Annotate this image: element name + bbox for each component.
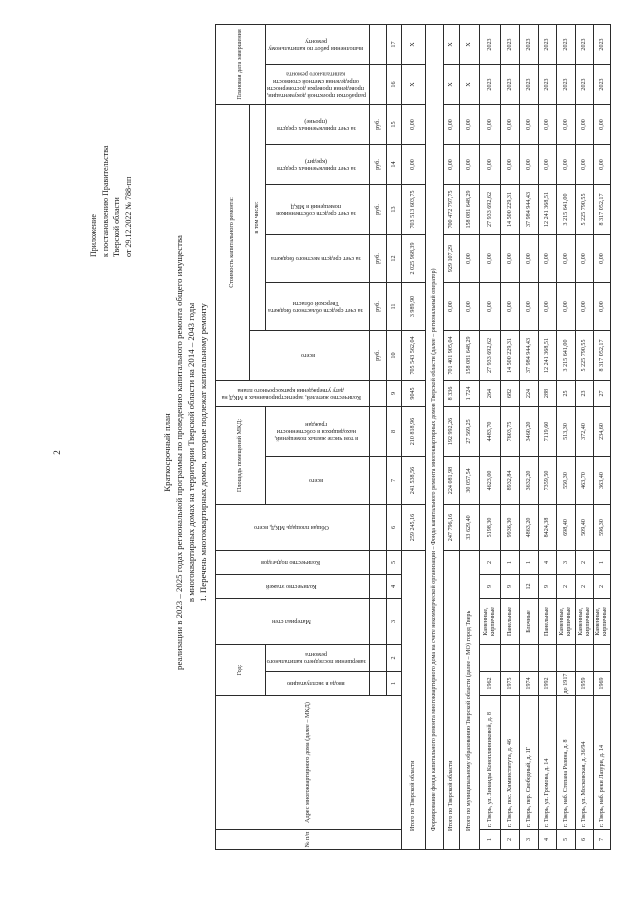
data-cell: 27 933 692,62 [480,184,501,234]
summary-value: X [402,64,426,104]
data-cell [520,644,539,671]
summary-row: Формирование фонда капитального ремонта … [426,24,444,849]
header-cost-owners: за счет средств собственников помещений … [266,184,370,234]
data-cell: 0,00 [576,234,594,282]
table-row: 3г. Тверь, пер. Свободный, д. 1Г1974Блоч… [520,24,539,849]
header-entrances: Количество подъездов [216,550,370,574]
data-cell: 596,30 [594,504,611,550]
unit-cell-col8 [370,504,387,550]
data-cell: 0,00 [539,234,557,282]
header-premises-area-group: Площадь помещений МКД: [216,406,266,504]
row-number-cell: 6 [576,830,594,850]
data-cell: 2 [576,574,594,598]
summary-value: X [460,24,480,64]
data-cell: 1992 [539,672,557,696]
data-cell: 2023 [557,24,576,64]
summary-value: 224 081,98 [444,456,460,504]
data-cell: 0,00 [539,104,557,144]
data-cell: 0,00 [520,234,539,282]
unit-cell-col10 [370,406,387,456]
header-premises-area-citizens-text: в том числе жилых помещений, находящихся… [266,421,366,442]
header-cost-other-text: за счет привлеченных средств (прочие) [266,117,366,131]
column-number-3: 3 [387,598,402,644]
column-number-4: 4 [387,574,402,598]
data-cell: 8 317 052,17 [594,184,611,234]
column-number-11: 11 [387,282,402,330]
summary-value: 259 245,16 [402,504,426,550]
summary-value: 929 107,29 [444,234,460,282]
unit-cell-col3 [370,672,387,696]
unit-cell-col4 [370,644,387,671]
data-cell: 4 [539,550,557,574]
header-cost-local: за счет средств местного бюджета [266,234,370,282]
header-date-works: выполнения работ по капитальному ремонту [266,24,370,64]
data-cell: 1962 [480,672,501,696]
header-cost-local-text: за счет средств местного бюджета [271,255,361,262]
header-date-group: Плановая дата завершения [216,24,266,104]
header-premises-area-total-text: всего [309,477,323,484]
summary-label: Итого по Тверской области [402,550,426,849]
data-cell: 3 215 641,00 [557,330,576,380]
summary-value: 0,00 [460,104,480,144]
data-cell: 513,30 [557,406,576,456]
data-cell: Каменные, кирпичные [594,598,611,644]
column-number-1: 1 [387,672,402,696]
data-cell: 509,40 [576,504,594,550]
unit-cell-col6 [370,574,387,598]
column-number-16: 16 [387,64,402,104]
data-cell: 5 225 790,55 [576,184,594,234]
summary-value: 158 081 648,29 [460,184,480,234]
data-cell: 463,70 [576,456,594,504]
summary-value: 192 992,26 [444,406,460,456]
header-year-last-repair-text: завершения последнего капитального ремон… [266,651,366,665]
data-cell: 0,00 [520,144,539,184]
data-cell [501,644,520,671]
data-cell: 12 [520,574,539,598]
address-cell: г. Тверь, пер. Свободный, д. 1Г [520,696,539,830]
data-cell: 1969 [594,672,611,696]
data-cell: 27 933 692,62 [480,330,501,380]
appendix-line: к постановлению Правительства [100,146,112,257]
summary-value: 0,00 [444,144,460,184]
page-number: 2 [52,0,62,905]
column-number-2: 2 [387,644,402,671]
header-cost-group: Стоимость капитального ремонта: [216,104,250,380]
data-cell: 9 [501,574,520,598]
data-cell: 2 [480,550,501,574]
row-number-cell: 5 [557,830,576,850]
header-cost-credit-text: за счет привлеченных средств (кредит) [266,157,366,171]
data-cell: 0,00 [501,282,520,330]
data-cell: 2023 [594,24,611,64]
address-cell: г. Тверь, ул. Зинаиды Коноплянниковой, д… [480,696,501,830]
data-cell: 1975 [501,672,520,696]
row-number-cell: 3 [520,830,539,850]
summary-value: X [444,64,460,104]
data-cell: 0,00 [576,282,594,330]
summary-value: 700 472 797,75 [444,184,460,234]
data-cell: 2023 [501,64,520,104]
summary-value: 0,00 [444,282,460,330]
unit-cell-col9 [370,456,387,504]
data-cell: 0,00 [539,282,557,330]
data-cell: 0,00 [594,144,611,184]
header-residents: Количество жителей, зарегистрированных в… [216,380,370,406]
data-cell: 2 [557,574,576,598]
header-cost-regional: за счет средств областного бюджета Тверс… [266,282,370,330]
summary-value: 241 538,56 [402,456,426,504]
header-year-built: ввода в эксплуатацию [266,672,370,696]
title-line: 1. Перечень многоквартирных домов, котор… [198,0,210,905]
header-num: № п/п [216,830,402,850]
data-cell: 2023 [520,64,539,104]
data-cell: 9 [539,574,557,598]
header-cost-incl-group: в том числе: [250,104,266,330]
header-premises-area-total: всего [266,456,370,504]
data-cell: Панельные [501,598,520,644]
summary-value: 0,00 [402,104,426,144]
data-cell: 1974 [520,672,539,696]
data-cell: 0,00 [480,144,501,184]
data-cell: 4863,20 [520,504,539,550]
header-cost-credit: за счет привлеченных средств (кредит) [266,144,370,184]
summary-value: 158 081 648,29 [460,330,480,380]
appendix-line: от 29.12.2022 № 788-пп [123,146,135,257]
summary-value: 30 057,54 [460,456,480,504]
unit-cell-col11 [370,380,387,406]
summary-value: 0,00 [460,234,480,282]
data-cell: 3632,20 [520,456,539,504]
data-cell: 37 984 944,43 [520,330,539,380]
row-number-cell: 2 [501,830,520,850]
data-cell: 288 [539,380,557,406]
table-row: 6г. Тверь, ул. Московская, д. 36/941959К… [576,24,594,849]
unit-cell-col17: руб. [370,104,387,144]
appendix-line: Тверской области [111,146,123,257]
data-cell: 7603,75 [501,406,520,456]
unit-cell-col14: руб. [370,234,387,282]
data-cell: до 1917 [557,672,576,696]
row-number-cell: 1 [480,830,501,850]
column-number-9: 9 [387,380,402,406]
header-wall-material-text: Материал стен [272,618,311,625]
unit-cell-col18 [370,64,387,104]
data-cell: 2 [594,574,611,598]
data-cell: 0,00 [539,144,557,184]
row-number-cell: 7 [594,830,611,850]
header-year-built-text: ввода в эксплуатацию [287,680,345,687]
address-cell: г. Тверь, ул. Громова, д. 14 [539,696,557,830]
data-cell: 3460,20 [520,406,539,456]
data-cell: 0,00 [480,104,501,144]
summary-value: 247 796,16 [444,504,460,550]
data-cell: 5 225 790,55 [576,330,594,380]
column-number-7: 7 [387,456,402,504]
header-floors-text: Количество этажей [266,583,317,590]
data-cell: 9936,30 [501,504,520,550]
data-cell: 363,40 [594,456,611,504]
summary-value: 0,00 [460,282,480,330]
unit-cell-col7 [370,550,387,574]
data-cell: 37 984 944,43 [520,184,539,234]
rotated-sheet: Приложение к постановлению Правительства… [0,0,640,905]
data-cell: Панельные [539,598,557,644]
summary-value: 2 025 968,39 [402,234,426,282]
column-number-6: 6 [387,504,402,550]
header-cost-regional-text: за счет средств областного бюджета Тверс… [266,299,366,313]
data-cell: 698,40 [557,504,576,550]
summary-value: X [460,64,480,104]
address-cell: г. Тверь, наб. Степана Разина, д. 8 [557,696,576,830]
header-cost-owners-text: за счет средств собственников помещений … [266,202,366,216]
data-cell: Каменные, кирпичные [557,598,576,644]
data-cell: 2023 [539,64,557,104]
table-row: 1г. Тверь, ул. Зинаиды Коноплянниковой, … [480,24,501,849]
summary-row: Итого по Тверской области259 245,16241 5… [402,24,426,849]
data-cell: 1959 [576,672,594,696]
summary-value: 0,00 [402,144,426,184]
data-cell: 4623,00 [480,456,501,504]
unit-cell-col12: руб. [370,330,387,380]
data-cell: 2023 [594,64,611,104]
data-cell: 12 241 368,51 [539,330,557,380]
table-row: 5г. Тверь, наб. Степана Разина, д. 8до 1… [557,24,576,849]
summary-value: 9045 [402,380,426,406]
data-cell: 14 500 229,31 [501,330,520,380]
data-cell: Каменные, кирпичные [576,598,594,644]
data-cell: 25 [557,380,576,406]
data-cell: 0,00 [480,282,501,330]
header-date-docs: разработки проектной документации, прове… [266,64,370,104]
data-cell: 3 [557,550,576,574]
data-cell: 550,30 [557,456,576,504]
address-cell: г. Тверь, наб. реки Лазури, д. 14 [594,696,611,830]
column-number-14: 14 [387,144,402,184]
column-number-8: 8 [387,406,402,456]
unit-cell-col15: руб. [370,184,387,234]
data-cell: 7359,50 [539,456,557,504]
column-number-15: 15 [387,104,402,144]
summary-row: Итого по Тверской области247 796,16224 0… [444,24,460,849]
summary-value: X [444,24,460,64]
address-cell: г. Тверь, ул. Московская, д. 36/94 [576,696,594,830]
data-cell: 0,00 [594,234,611,282]
summary-label: Итого по Тверской области [444,550,460,849]
unit-cell-col13: руб. [370,282,387,330]
data-cell: 0,00 [594,104,611,144]
data-cell: 2023 [480,24,501,64]
table-row: 4г. Тверь, ул. Громова, д. 141992Панельн… [539,24,557,849]
header-entrances-text: Количество подъездов [261,559,320,566]
data-cell: 0,00 [557,282,576,330]
header-cost-other: за счет привлеченных средств (прочие) [266,104,370,144]
header-date-works-text: выполнения работ по капитальному ремонту [266,37,366,51]
data-cell [594,644,611,671]
data-cell: 9 [480,574,501,598]
data-cell: 2 [576,550,594,574]
header-address: Адрес многоквартирного дома (далее – МКД… [216,696,402,830]
summary-value: 8 336 [444,380,460,406]
data-cell: 0,00 [576,104,594,144]
header-premises-area-citizens: в том числе жилых помещений, находящихся… [266,406,370,456]
data-cell: 2023 [501,24,520,64]
data-cell: 23 [576,380,594,406]
data-cell: Блочные [520,598,539,644]
header-year-last-repair: завершения последнего капитального ремон… [266,644,370,671]
title-line: реализации в 2023 – 2025 годах региональ… [174,0,186,905]
data-cell: Каменные, кирпичные [480,598,501,644]
header-total-area: Общая площадь МКД, всего [216,504,370,550]
table-row: 2г. Тверь, пос. Химинститута, д. 461975П… [501,24,520,849]
column-number-5: 5 [387,550,402,574]
summary-value: 3 989,90 [402,282,426,330]
header-cost-total-text: всего [301,352,315,359]
repair-plan-table: № п/п Адрес многоквартирного дома (далее… [215,24,611,850]
data-cell: 0,00 [557,104,576,144]
data-cell: 372,40 [576,406,594,456]
column-number-13: 13 [387,184,402,234]
summary-value: 27 569,25 [460,406,480,456]
data-cell [480,644,501,671]
header-date-docs-text: разработки проектной документации, прове… [266,70,366,99]
title-line: Краткосрочный план [162,0,174,905]
title-line: в многоквартирных домах на территории Тв… [186,0,198,905]
summary-value: X [402,24,426,64]
data-cell: 2023 [520,24,539,64]
row-number-cell: 4 [539,830,557,850]
data-cell: 0,00 [594,282,611,330]
data-cell: 234,60 [594,406,611,456]
data-cell: 3 215 641,00 [557,184,576,234]
header-residents-text: Количество жителей, зарегистрированных в… [217,386,365,400]
data-cell: 2023 [539,24,557,64]
column-number-17: 17 [387,24,402,64]
address-cell: г. Тверь, пос. Химинститута, д. 46 [501,696,520,830]
summary-value: 701 401 905,04 [444,330,460,380]
summary-value: 33 629,40 [460,504,480,550]
data-cell: 8424,38 [539,504,557,550]
data-cell: 2023 [576,64,594,104]
summary-value: 703 513 603,75 [402,184,426,234]
header-wall-material: Материал стен [216,598,370,644]
data-cell: 27 [594,380,611,406]
unit-cell-col19 [370,24,387,64]
column-number-10: 10 [387,330,402,380]
data-cell: 12 241 368,51 [539,184,557,234]
data-cell: 0,00 [557,234,576,282]
data-cell: 14 500 229,31 [501,184,520,234]
unit-cell-col16: руб. [370,144,387,184]
table-row: 7г. Тверь, наб. реки Лазури, д. 141969Ка… [594,24,611,849]
appendix-block: Приложение к постановлению Правительства… [88,146,134,257]
data-cell: 0,00 [501,234,520,282]
summary-label: Итого по муниципальному образованию Твер… [460,550,480,849]
unit-cell-col5 [370,598,387,644]
data-cell: 4483,70 [480,406,501,456]
data-cell: 1 [594,550,611,574]
data-cell: 8 317 052,17 [594,330,611,380]
data-cell: 8932,84 [501,456,520,504]
data-cell [557,644,576,671]
column-number-12: 12 [387,234,402,282]
data-cell: 7119,60 [539,406,557,456]
summary-value: 0,00 [460,144,480,184]
data-cell: 0,00 [520,282,539,330]
header-total-area-text: Общая площадь МКД, всего [254,524,329,531]
summary-row: Итого по муниципальному образованию Твер… [460,24,480,849]
data-cell: 224 [520,380,539,406]
forming-fund-row-label: Формирование фонда капитального ремонта … [426,24,444,849]
data-cell: 682 [501,380,520,406]
header-year-group: Год: [216,644,266,695]
data-cell [539,644,557,671]
document-page: Приложение к постановлению Правительства… [0,0,640,905]
data-cell: 0,00 [576,144,594,184]
data-cell: 264 [480,380,501,406]
data-cell: 1 [501,550,520,574]
data-cell: 2023 [557,64,576,104]
data-cell [576,644,594,671]
data-cell: 5198,30 [480,504,501,550]
data-cell: 0,00 [501,144,520,184]
header-cost-total: всего [250,330,370,380]
data-cell: 2023 [576,24,594,64]
summary-value: 1 724 [460,380,480,406]
data-cell: 0,00 [480,234,501,282]
data-cell: 0,00 [501,104,520,144]
data-cell: 0,00 [557,144,576,184]
summary-value: 0,00 [444,104,460,144]
header-floors: Количество этажей [216,574,370,598]
document-title: Краткосрочный план реализации в 2023 – 2… [162,0,210,905]
appendix-line: Приложение [88,146,100,257]
data-cell: 1 [520,550,539,574]
summary-value: 210 818,96 [402,406,426,456]
summary-value: 705 543 562,04 [402,330,426,380]
data-cell: 2023 [480,64,501,104]
data-cell: 0,00 [520,104,539,144]
